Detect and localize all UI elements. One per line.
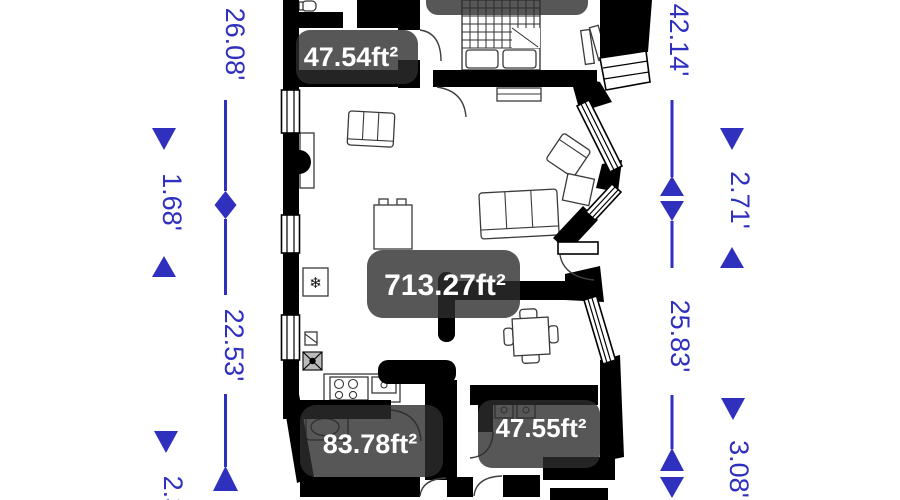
- sideboard: [497, 88, 541, 101]
- small-appliance-icon: [305, 332, 317, 345]
- toilet-icon: [299, 1, 316, 11]
- floorplan-canvas: ❄: [0, 0, 900, 500]
- window-right-diag-3: [584, 296, 616, 364]
- area-label-bathroom: 83.78ft²: [300, 405, 443, 477]
- kitchen-island: [374, 199, 412, 249]
- svg-text:713.27ft²: 713.27ft²: [384, 269, 506, 302]
- svg-text:1.68': 1.68': [157, 173, 187, 231]
- dim-right-42-14: 42.14': [664, 4, 694, 77]
- dim-arrow-up-2: [660, 448, 684, 471]
- door-sill: [558, 242, 598, 254]
- svg-text:2.71': 2.71': [725, 171, 755, 229]
- dim-half-diamond-marker: [213, 466, 238, 491]
- door-arc-bottom-2: [474, 476, 502, 496]
- door-arc-bottom-1: [420, 478, 446, 496]
- door-arc-hall-living: [437, 87, 466, 117]
- sofa-large: [479, 189, 559, 239]
- dim-callout-2-71: 2.71': [720, 128, 755, 268]
- area-label-bottom-right-room: 47.55ft²: [478, 400, 600, 468]
- dim-right-25-83: 25.83': [665, 300, 695, 373]
- dim-left-26-08: 26.08': [220, 8, 250, 81]
- dim-left-22-53: 22.53': [219, 309, 249, 382]
- svg-text:2.3': 2.3': [158, 476, 188, 500]
- area-label-room-top-left: 47.54ft²: [296, 30, 418, 84]
- freezer-icon: ❄: [303, 268, 328, 296]
- svg-text:3.08': 3.08': [724, 440, 754, 498]
- dimensions-right: 42.14' 25.83' 2.71' 3.08': [660, 4, 755, 498]
- dim-callout-3-08: 3.08': [721, 398, 754, 498]
- sofa-small: [347, 111, 395, 147]
- stair-landing-right: [503, 50, 536, 68]
- dim-arrow-up: [660, 176, 684, 196]
- dim-callout-2-3: 2.3': [154, 431, 188, 500]
- dim-diamond-marker: [215, 191, 237, 219]
- dim-callout-1-68: 1.68': [152, 128, 187, 277]
- shower-drain-icon: [303, 352, 322, 370]
- door-arc-topleft-room: [420, 30, 441, 61]
- armchair: [546, 133, 591, 178]
- stair-landing-left: [466, 50, 498, 68]
- svg-text:83.78ft²: 83.78ft²: [323, 429, 418, 459]
- svg-text:❄: ❄: [309, 275, 322, 292]
- window-left-2: [282, 215, 300, 253]
- area-label-living-room: 713.27ft²: [367, 250, 520, 318]
- window-left-3: [282, 315, 300, 360]
- fireplace-icon: [299, 133, 314, 188]
- dim-arrow-down: [660, 201, 684, 221]
- window-left-1: [282, 90, 300, 133]
- dimensions-left: 26.08' 22.53' 1.68' 2.3': [152, 8, 250, 500]
- floorplan-viewer: ❄: [0, 0, 900, 500]
- side-table: [562, 174, 594, 206]
- area-label-cropped-top: [426, 0, 588, 15]
- dim-arrow-down-2: [660, 477, 684, 498]
- svg-text:47.55ft²: 47.55ft²: [495, 413, 586, 443]
- window-top-right: [600, 51, 650, 90]
- svg-text:47.54ft²: 47.54ft²: [304, 42, 399, 72]
